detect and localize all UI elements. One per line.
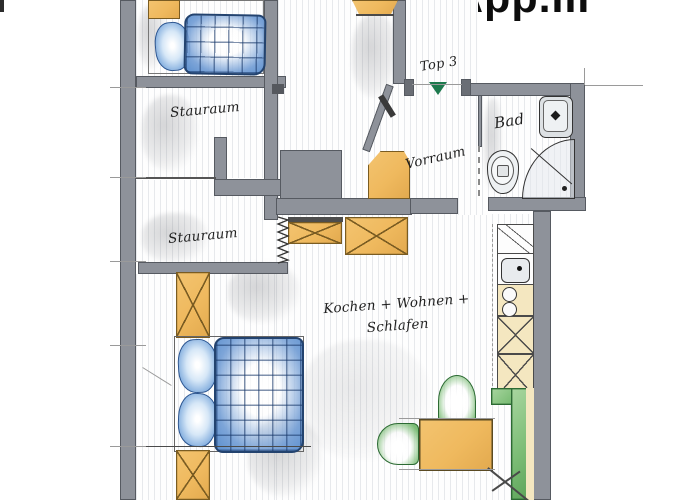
bed-footer-line bbox=[137, 446, 311, 447]
wall-hallway-right bbox=[393, 0, 406, 84]
shower-drain-dot bbox=[562, 186, 567, 191]
wall-t-horizontal bbox=[214, 179, 290, 196]
pillow-double-bed bbox=[177, 392, 218, 447]
blanket-single-bed bbox=[183, 13, 266, 75]
wall-top-bathroom bbox=[464, 83, 584, 96]
wall-left-outer bbox=[120, 0, 136, 500]
wall-tick bbox=[110, 261, 146, 262]
stove-burner bbox=[502, 302, 517, 317]
blanket-double-bed bbox=[214, 337, 304, 453]
bathroom-door-dashes bbox=[478, 146, 480, 196]
wardrobe-below-bed bbox=[176, 450, 210, 500]
nightstand bbox=[148, 0, 180, 19]
hall-cabinet-edge bbox=[356, 14, 394, 16]
wall-below-vorraum bbox=[410, 198, 458, 214]
wall-t-vertical bbox=[214, 137, 227, 181]
kitchen-sink bbox=[501, 258, 530, 283]
wall-tick bbox=[110, 446, 146, 447]
doorway-floor bbox=[458, 197, 488, 215]
kitchen-faucet bbox=[517, 266, 522, 271]
door-hinge-block bbox=[272, 84, 284, 94]
door-jamb-left bbox=[404, 79, 414, 96]
door-jamb-right bbox=[461, 79, 471, 96]
kitchen-upper-cabinet bbox=[497, 224, 534, 254]
construction-line bbox=[585, 85, 643, 86]
wall-living-right bbox=[533, 211, 551, 500]
wall-tick bbox=[110, 345, 146, 346]
wardrobe-above-bed bbox=[176, 272, 210, 338]
stove-burner bbox=[502, 287, 517, 302]
wall-below-bathroom bbox=[488, 197, 586, 211]
storage-divider-line bbox=[136, 177, 216, 179]
radiator-zigzag-icon bbox=[275, 216, 291, 264]
bench-wall-strip bbox=[526, 388, 534, 500]
wall-below-hallway bbox=[276, 198, 412, 215]
kitchen-cabinet bbox=[497, 316, 534, 354]
floorplan-canvas: App.III bbox=[0, 0, 700, 500]
bathroom-sink bbox=[539, 96, 573, 138]
pillow-double-bed bbox=[177, 338, 219, 394]
threshold-line bbox=[412, 84, 462, 85]
corner-mark bbox=[0, 0, 4, 12]
counter-front-line bbox=[492, 224, 493, 396]
wall-bathroom-left bbox=[478, 95, 482, 147]
construction-line bbox=[399, 469, 495, 470]
wall-central-block bbox=[280, 150, 342, 200]
cabinet-center bbox=[345, 217, 408, 255]
cabinet-low bbox=[288, 222, 342, 244]
construction-line bbox=[584, 68, 585, 85]
dining-chair-top bbox=[438, 375, 476, 423]
toilet-flush bbox=[497, 165, 509, 177]
dining-chair-left bbox=[377, 423, 419, 465]
dining-table bbox=[419, 419, 493, 471]
construction-line bbox=[399, 418, 495, 419]
wall-storage2-bottom bbox=[138, 262, 288, 274]
hall-cabinet bbox=[352, 0, 398, 15]
wall-tick bbox=[110, 177, 146, 178]
wall-tick bbox=[110, 87, 146, 88]
